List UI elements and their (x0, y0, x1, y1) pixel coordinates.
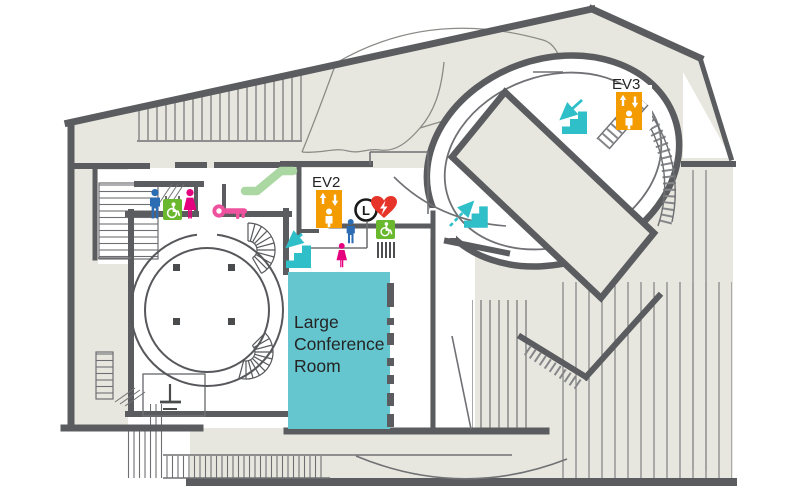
ev2-label: EV2 (312, 174, 340, 191)
svg-text:Large: Large (294, 312, 339, 332)
ev2-elevator: EV2 (312, 174, 342, 228)
ev3-label: EV3 (612, 76, 640, 93)
svg-text:Conference: Conference (294, 334, 384, 354)
ev3-elevator: EV3 (612, 76, 642, 130)
floor-map: Large Conference Room EV2 EV3 L (0, 0, 800, 500)
svg-text:L: L (362, 203, 370, 218)
svg-text:Room: Room (294, 356, 341, 376)
floor-map-canvas: Large Conference Room EV2 EV3 L (0, 0, 800, 500)
large-conference-room: Large Conference Room (288, 272, 394, 429)
